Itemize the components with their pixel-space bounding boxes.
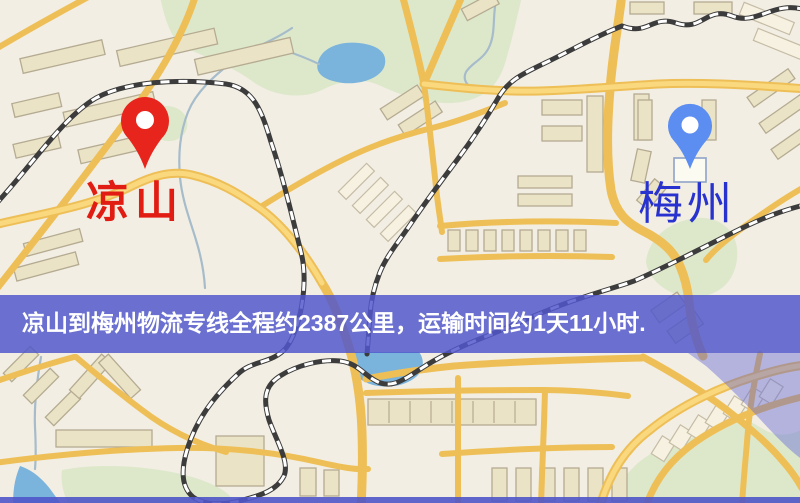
map-canvas[interactable]: 凉山到梅州物流专线全程约2387公里，运输时间约1天11小时. 凉山 梅州 xyxy=(0,0,800,503)
origin-pin-label: 凉山 xyxy=(86,179,184,227)
origin-pin-hole xyxy=(136,111,154,129)
info-banner-text: 凉山到梅州物流专线全程约2387公里，运输时间约1天11小时. xyxy=(22,310,646,336)
destination-pin-hole xyxy=(682,117,699,134)
map-viewport[interactable]: 凉山到梅州物流专线全程约2387公里，运输时间约1天11小时. 凉山 梅州 xyxy=(0,0,800,503)
destination-pin-label: 梅州 xyxy=(638,178,736,229)
second-banner-edge xyxy=(0,497,800,503)
